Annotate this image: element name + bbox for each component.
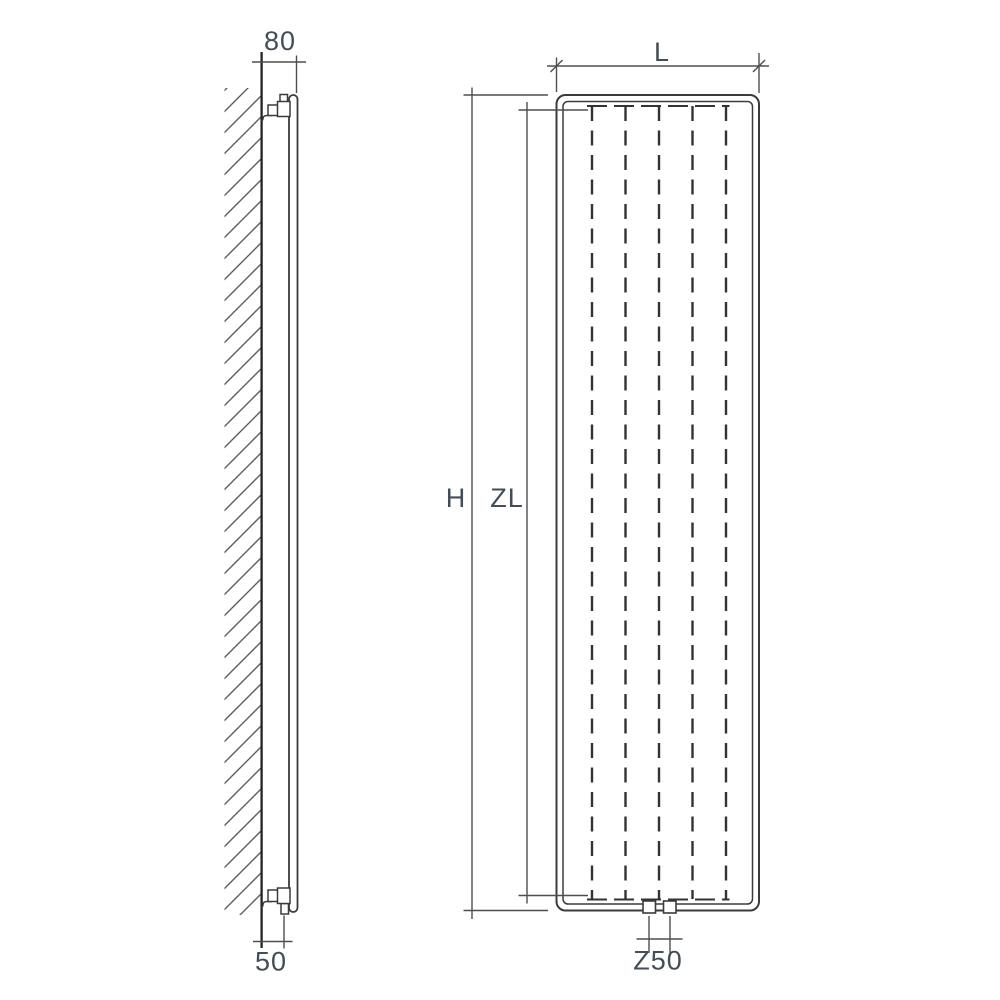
- bottom-bracket-clamp: [278, 888, 291, 904]
- dimension-width-L: L: [547, 37, 769, 93]
- dimension-depth-80: 80: [252, 26, 306, 93]
- radiator-technical-drawing: 80 50: [0, 0, 1000, 1000]
- dim-H-label: H: [446, 483, 467, 513]
- connection-valve-right: [664, 901, 677, 913]
- wall-hatching: [225, 88, 262, 915]
- radiator-panel-side: [289, 95, 298, 912]
- dim-80-label: 80: [264, 26, 296, 56]
- front-view: L H ZL Z50: [446, 37, 769, 976]
- dim-Z50-label: Z50: [633, 946, 683, 976]
- bottom-bracket: [261, 888, 290, 914]
- top-bracket-clamp: [278, 102, 291, 117]
- drawing-svg: 80 50: [0, 0, 1000, 1000]
- dim-50-label: 50: [255, 947, 287, 977]
- radiator-outer-outline: [557, 95, 760, 911]
- side-view: 80 50: [225, 26, 307, 977]
- dimension-connection-Z50: Z50: [633, 916, 683, 976]
- bottom-bracket-stub: [281, 904, 289, 915]
- dim-ZL-label: ZL: [490, 483, 524, 513]
- connection-valve-left: [643, 901, 656, 913]
- top-bracket: [261, 95, 290, 121]
- dimension-bottom-50: 50: [253, 916, 293, 977]
- dim-L-label: L: [654, 37, 670, 67]
